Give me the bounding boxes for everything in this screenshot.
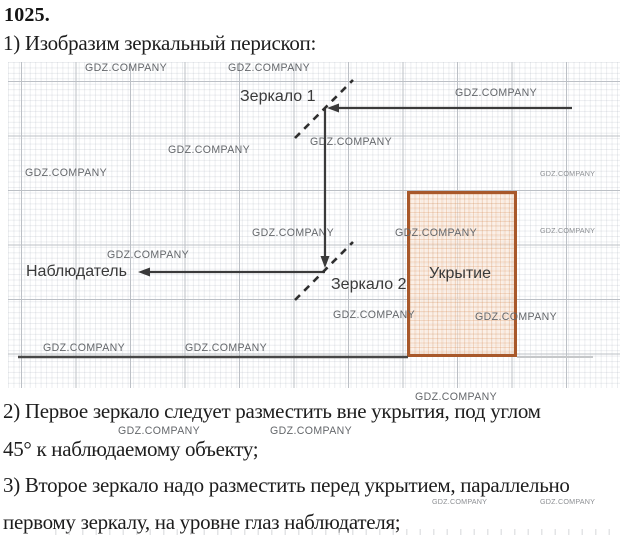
mirror1-label: Зеркало 1 xyxy=(240,88,315,106)
watermark: GDZ.COMPANY xyxy=(168,144,250,156)
incoming-ray-arrowhead xyxy=(327,104,339,113)
next-figure-edge xyxy=(55,529,615,535)
watermark: GDZ.COMPANY xyxy=(475,311,557,323)
watermark: GDZ.COMPANY xyxy=(540,169,595,178)
observer-label: Наблюдатель xyxy=(26,263,127,281)
watermark: GDZ.COMPANY xyxy=(540,497,595,506)
watermark: GDZ.COMPANY xyxy=(270,425,352,437)
watermark: GDZ.COMPANY xyxy=(252,227,334,239)
watermark: GDZ.COMPANY xyxy=(118,425,200,437)
periscope-diagram: GDZ.COMPANY GDZ.COMPANY GDZ.COMPANY GDZ.… xyxy=(8,62,620,388)
mirror2-label: Зеркало 2 xyxy=(331,276,406,294)
watermark: GDZ.COMPANY xyxy=(455,87,537,99)
step2-text-line1: 2) Первое зеркало следует разместить вне… xyxy=(3,399,541,424)
watermark: GDZ.COMPANY xyxy=(107,249,189,261)
ray-diagram-overlay xyxy=(8,62,620,388)
shelter-label: Укрытие xyxy=(429,265,491,283)
step1-text: 1) Изобразим зеркальный перископ: xyxy=(3,31,316,56)
gdz-answer-page: { "header": { "problem_number": "1025.",… xyxy=(0,0,626,535)
watermark: GDZ.COMPANY xyxy=(25,167,107,179)
step3-text-line1: 3) Второе зеркало надо разместить перед … xyxy=(3,473,570,498)
watermark: GDZ.COMPANY xyxy=(85,62,167,74)
vertical-ray-arrowhead xyxy=(321,256,330,268)
watermark: GDZ.COMPANY xyxy=(432,497,487,506)
watermark: GDZ.COMPANY xyxy=(395,227,477,239)
watermark: GDZ.COMPANY xyxy=(185,342,267,354)
problem-number: 1025. xyxy=(4,4,50,27)
watermark: GDZ.COMPANY xyxy=(43,342,125,354)
step2-text-line2: 45° к наблюдаемому объекту; xyxy=(3,437,258,462)
watermark: GDZ.COMPANY xyxy=(228,62,310,74)
watermark: GDZ.COMPANY xyxy=(333,309,415,321)
watermark: GDZ.COMPANY xyxy=(540,226,595,235)
observer-ray-arrowhead xyxy=(138,268,150,277)
watermark: GDZ.COMPANY xyxy=(310,136,392,148)
